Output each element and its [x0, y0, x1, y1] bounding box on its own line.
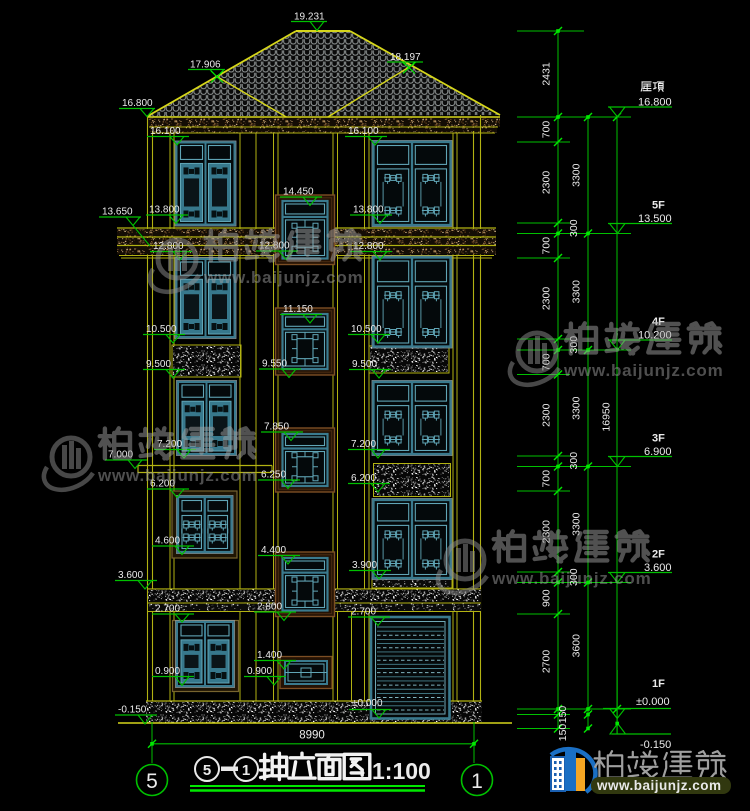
svg-text:10.500: 10.500 [351, 324, 382, 335]
svg-text:7.200: 7.200 [351, 439, 376, 450]
svg-text:8990: 8990 [299, 730, 325, 742]
svg-text:1: 1 [242, 762, 250, 779]
svg-text:5: 5 [203, 762, 211, 779]
svg-text:3300: 3300 [571, 163, 583, 187]
svg-text:3300: 3300 [571, 396, 583, 420]
svg-text:14.450: 14.450 [283, 187, 314, 198]
svg-text:-0.150: -0.150 [640, 739, 671, 751]
svg-text:11.150: 11.150 [283, 304, 313, 315]
svg-text:16950: 16950 [601, 402, 613, 431]
svg-text:4.400: 4.400 [261, 545, 286, 556]
svg-text:3F: 3F [652, 433, 665, 445]
svg-text:2431: 2431 [541, 62, 553, 86]
svg-text:±0.000: ±0.000 [636, 696, 670, 708]
svg-text:9.550: 9.550 [262, 359, 287, 370]
svg-text:13.650: 13.650 [102, 207, 133, 218]
svg-text:3300: 3300 [571, 280, 583, 304]
svg-text:2F: 2F [652, 549, 665, 561]
svg-text:16.800: 16.800 [122, 98, 153, 109]
svg-text:3.600: 3.600 [118, 570, 143, 581]
svg-text:0.900: 0.900 [247, 666, 272, 677]
svg-text:13.800: 13.800 [353, 205, 384, 216]
svg-text:700: 700 [541, 470, 553, 488]
svg-text:www.baijunjz.com: www.baijunjz.com [203, 268, 364, 287]
svg-text:700: 700 [541, 121, 553, 139]
svg-text:18.197: 18.197 [390, 52, 421, 63]
svg-text:2700: 2700 [541, 650, 553, 674]
svg-text:2300: 2300 [541, 403, 553, 427]
svg-text:700: 700 [541, 237, 553, 255]
svg-text:2.700: 2.700 [155, 604, 180, 615]
svg-text:150: 150 [557, 706, 569, 724]
svg-text:1.400: 1.400 [257, 650, 282, 661]
svg-text:±0.000: ±0.000 [352, 698, 383, 709]
svg-text:300: 300 [568, 452, 580, 470]
svg-text:13.500: 13.500 [638, 213, 672, 225]
svg-text:19.231: 19.231 [294, 12, 325, 23]
svg-text:6.250: 6.250 [261, 470, 286, 481]
svg-text:9.500: 9.500 [146, 359, 171, 370]
svg-text:16.100: 16.100 [150, 126, 181, 137]
svg-text:9.500: 9.500 [352, 359, 377, 370]
svg-text:7.850: 7.850 [264, 422, 289, 433]
svg-text:1:100: 1:100 [372, 758, 431, 784]
svg-text:www.baijunjz.com: www.baijunjz.com [596, 778, 722, 793]
svg-text:-0.150: -0.150 [118, 705, 147, 716]
svg-text:6.200: 6.200 [351, 473, 376, 484]
svg-text:3600: 3600 [571, 634, 583, 658]
svg-text:150: 150 [557, 724, 569, 742]
svg-text:0.900: 0.900 [155, 666, 180, 677]
svg-text:1: 1 [471, 770, 483, 793]
svg-text:17.906: 17.906 [190, 60, 221, 71]
svg-text:www.baijunjz.com: www.baijunjz.com [97, 466, 258, 485]
svg-text:300: 300 [568, 219, 580, 237]
svg-text:www.baijunjz.com: www.baijunjz.com [491, 569, 652, 588]
svg-text:1F: 1F [652, 678, 665, 690]
svg-text:5: 5 [146, 770, 158, 793]
svg-text:4.600: 4.600 [155, 536, 180, 547]
svg-text:3.900: 3.900 [352, 560, 377, 571]
svg-text:13.800: 13.800 [149, 205, 180, 216]
svg-text:2.700: 2.700 [351, 607, 376, 618]
svg-text:6.900: 6.900 [644, 446, 672, 458]
svg-text:www.baijunjz.com: www.baijunjz.com [563, 361, 724, 380]
svg-text:900: 900 [541, 589, 553, 607]
svg-text:2300: 2300 [541, 171, 553, 195]
svg-text:10.500: 10.500 [146, 324, 177, 335]
svg-text:16.800: 16.800 [638, 97, 672, 109]
svg-text:2300: 2300 [541, 287, 553, 311]
svg-text:16.100: 16.100 [348, 126, 379, 137]
svg-text:2.800: 2.800 [257, 602, 282, 613]
svg-text:5F: 5F [652, 200, 665, 212]
